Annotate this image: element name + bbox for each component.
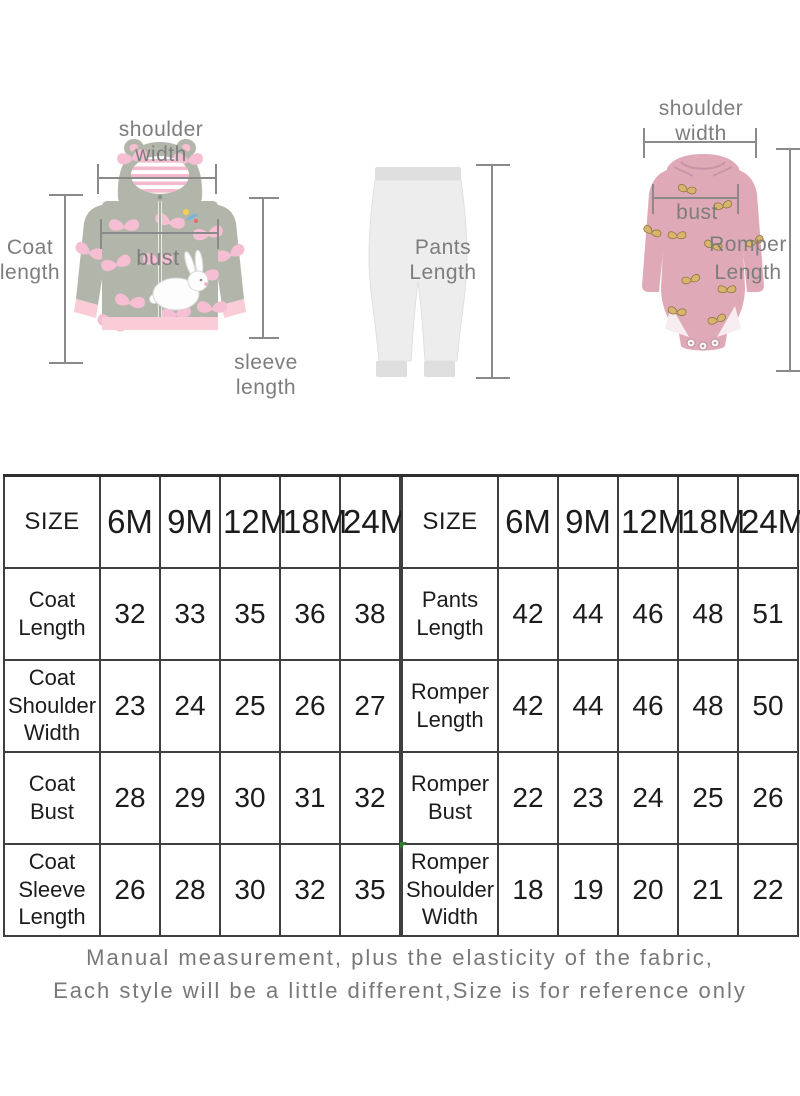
size-column-header: 6M [100,476,160,568]
measurement-value-cell: 32 [340,752,400,844]
disclaimer-line-2: Each style will be a little different,Si… [0,974,800,1007]
size-table-row: Coat Length3233353638 [4,568,400,660]
size-column-header: 9M [160,476,220,568]
measurement-value-cell: 22 [498,752,558,844]
pants-length-line [491,164,493,379]
pants-length-label: Pants Length [398,236,488,286]
size-table-left: SIZE6M9M12M18M24MCoat Length3233353638Co… [3,474,401,937]
measurement-value-cell: 30 [220,844,280,936]
measurement-label-cell: Romper Bust [402,752,498,844]
size-column-header: 12M [618,476,678,568]
romper-length-label: Romper Length [702,231,794,288]
coat-sleeve-length-line [262,197,264,339]
coat-length-label: Coat length [0,236,62,286]
romper-shoulder-width-label: shoulder width [646,97,756,147]
measurement-label-cell: Coat Shoulder Width [4,660,100,752]
measurement-value-cell: 26 [100,844,160,936]
measurement-value-cell: 46 [618,568,678,660]
size-table-row: Romper Length4244464850 [402,660,798,752]
measurement-value-cell: 25 [220,660,280,752]
size-table-header-row: SIZE6M9M12M18M24M [402,476,798,568]
size-column-header: 9M [558,476,618,568]
coat-shoulder-width-label: shoulder width [104,118,218,168]
measurement-value-cell: 48 [678,660,738,752]
romper-bust-line [652,197,739,199]
measurement-value-cell: 23 [558,752,618,844]
measurement-value-cell: 51 [738,568,798,660]
size-tables: SIZE6M9M12M18M24MCoat Length3233353638Co… [3,474,795,937]
measurement-value-cell: 35 [340,844,400,936]
coat-shoulder-width-line [97,177,217,179]
measurement-value-cell: 48 [678,568,738,660]
size-table-row: Romper Bust2223242526 [402,752,798,844]
measurement-value-cell: 33 [160,568,220,660]
measurement-value-cell: 23 [100,660,160,752]
measurement-value-cell: 26 [738,752,798,844]
measurement-value-cell: 42 [498,568,558,660]
size-label-cell: SIZE [402,476,498,568]
measurement-value-cell: 26 [280,660,340,752]
measurement-label-cell: Coat Length [4,568,100,660]
measurement-value-cell: 18 [498,844,558,936]
measurement-label-cell: Romper Shoulder Width [402,844,498,936]
size-chart-page: shoulder width Coat length bust sleeve l… [0,0,800,1096]
measurement-value-cell: 25 [678,752,738,844]
measurement-value-cell: 35 [220,568,280,660]
measurement-value-cell: 28 [160,844,220,936]
measurement-value-cell: 24 [618,752,678,844]
coat-length-line [64,194,66,364]
coat-bust-line [100,232,219,234]
measurement-value-cell: 29 [160,752,220,844]
measurement-value-cell: 32 [100,568,160,660]
size-table-row: Coat Shoulder Width2324252627 [4,660,400,752]
measurement-label-cell: Coat Sleeve Length [4,844,100,936]
measurement-label-cell: Pants Length [402,568,498,660]
measurement-value-cell: 44 [558,568,618,660]
size-table-header-row: SIZE6M9M12M18M24M [4,476,400,568]
measurement-value-cell: 28 [100,752,160,844]
size-table-row: Pants Length4244464851 [402,568,798,660]
disclaimer-note: Manual measurement, plus the elasticity … [0,941,800,1007]
measurement-value-cell: 42 [498,660,558,752]
cell-corner-marker [400,842,407,849]
measurement-value-cell: 50 [738,660,798,752]
measurement-value-cell: 32 [280,844,340,936]
size-table-row: Coat Sleeve Length2628303235 [4,844,400,936]
measurement-value-cell: 20 [618,844,678,936]
size-column-header: 18M [678,476,738,568]
coat-sleeve-length-label: sleeve length [219,351,313,401]
coat-bust-label: bust [118,245,198,271]
measurement-value-cell: 36 [280,568,340,660]
size-table-right: SIZE6M9M12M18M24MPants Length4244464851R… [401,474,799,937]
measurement-value-cell: 22 [738,844,798,936]
size-table-row: Coat Bust2829303132 [4,752,400,844]
measurement-value-cell: 24 [160,660,220,752]
measurement-value-cell: 27 [340,660,400,752]
disclaimer-line-1: Manual measurement, plus the elasticity … [0,941,800,974]
measurement-label-cell: Coat Bust [4,752,100,844]
romper-bust-label: bust [658,201,736,226]
measurement-value-cell: 30 [220,752,280,844]
measurement-value-cell: 38 [340,568,400,660]
size-column-header: 6M [498,476,558,568]
size-column-header: 24M [738,476,798,568]
measurement-value-cell: 46 [618,660,678,752]
size-column-header: 18M [280,476,340,568]
measurement-value-cell: 21 [678,844,738,936]
measurement-value-cell: 31 [280,752,340,844]
measurement-diagram: shoulder width Coat length bust sleeve l… [0,0,800,472]
measurement-label-cell: Romper Length [402,660,498,752]
size-column-header: 24M [340,476,400,568]
size-label-cell: SIZE [4,476,100,568]
size-table-row: Romper Shoulder Width1819202122 [402,844,798,936]
size-column-header: 12M [220,476,280,568]
measurement-value-cell: 44 [558,660,618,752]
measurement-value-cell: 19 [558,844,618,936]
